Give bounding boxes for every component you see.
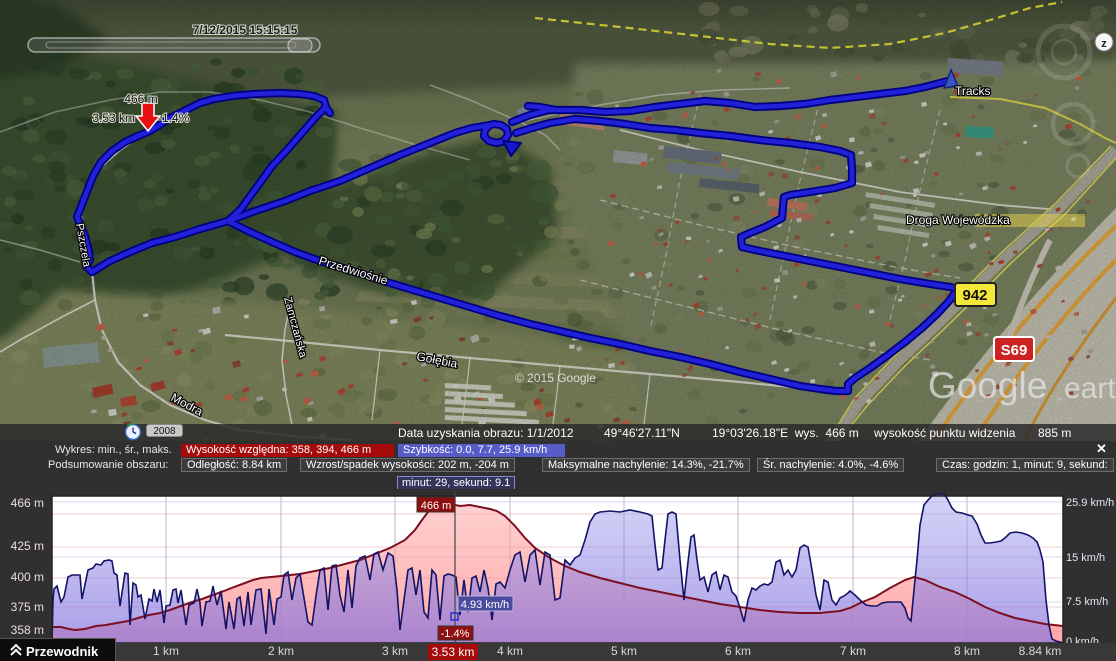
svg-text:1 km: 1 km [153,644,179,658]
svg-text:4.93 km/h: 4.93 km/h [461,599,509,611]
svg-text:earth: earth [1064,372,1116,405]
svg-text:-1.4%: -1.4% [158,111,190,125]
svg-text:466 m: 466 m [11,496,44,510]
svg-text:6 km: 6 km [725,644,751,658]
svg-text:8.84 km: 8.84 km [1019,644,1062,658]
svg-text:25.9 km/h: 25.9 km/h [1066,497,1114,509]
svg-text:8 km: 8 km [954,644,980,658]
svg-text:942: 942 [962,287,987,304]
svg-text:4 km: 4 km [497,644,523,658]
svg-text:15 km/h: 15 km/h [1066,552,1105,564]
svg-text:7.5 km/h: 7.5 km/h [1066,596,1108,608]
svg-text:Tracks: Tracks [955,84,991,98]
svg-text:7 km: 7 km [840,644,866,658]
svg-text:3.53 km: 3.53 km [92,111,135,125]
svg-text:Google: Google [928,365,1047,406]
svg-text:z: z [1101,38,1107,50]
svg-text:5 km: 5 km [611,644,637,658]
svg-text:2 km: 2 km [268,644,294,658]
svg-text:425 m: 425 m [11,539,44,553]
svg-text:358 m: 358 m [11,623,44,637]
svg-text:466 m: 466 m [124,92,157,106]
svg-text:375 m: 375 m [11,600,44,614]
svg-text:3.53 km: 3.53 km [432,645,475,659]
svg-text:400 m: 400 m [11,570,44,584]
svg-text:3 km: 3 km [382,644,408,658]
svg-text:7/12/2015 15:15:15: 7/12/2015 15:15:15 [193,23,298,37]
svg-text:Droga Wojewódzka: Droga Wojewódzka [906,213,1010,227]
svg-text:S69: S69 [1001,342,1028,359]
svg-text:466 m: 466 m [421,500,452,512]
svg-text:© 2015 Google: © 2015 Google [515,371,596,385]
svg-text:-1.4%: -1.4% [441,628,470,640]
